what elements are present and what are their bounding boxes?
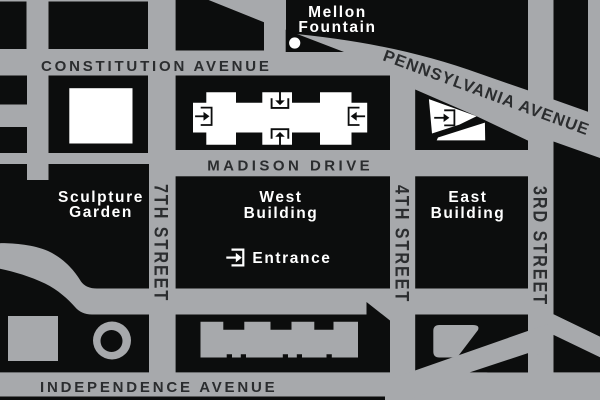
svg-text:West: West: [259, 189, 302, 206]
svg-text:Entrance: Entrance: [252, 250, 331, 267]
svg-text:MADISON DRIVE: MADISON DRIVE: [207, 157, 373, 174]
svg-text:Building: Building: [431, 205, 506, 222]
svg-text:INDEPENDENCE AVENUE: INDEPENDENCE AVENUE: [40, 379, 277, 396]
svg-text:7TH STREET: 7TH STREET: [150, 184, 172, 302]
svg-text:Fountain: Fountain: [298, 19, 376, 36]
svg-text:3RD STREET: 3RD STREET: [529, 186, 551, 306]
svg-text:Garden: Garden: [69, 204, 133, 221]
svg-text:4TH STREET: 4TH STREET: [391, 185, 413, 303]
svg-text:CONSTITUTION AVENUE: CONSTITUTION AVENUE: [41, 58, 272, 75]
svg-text:East: East: [448, 189, 487, 206]
svg-text:Building: Building: [244, 205, 319, 222]
